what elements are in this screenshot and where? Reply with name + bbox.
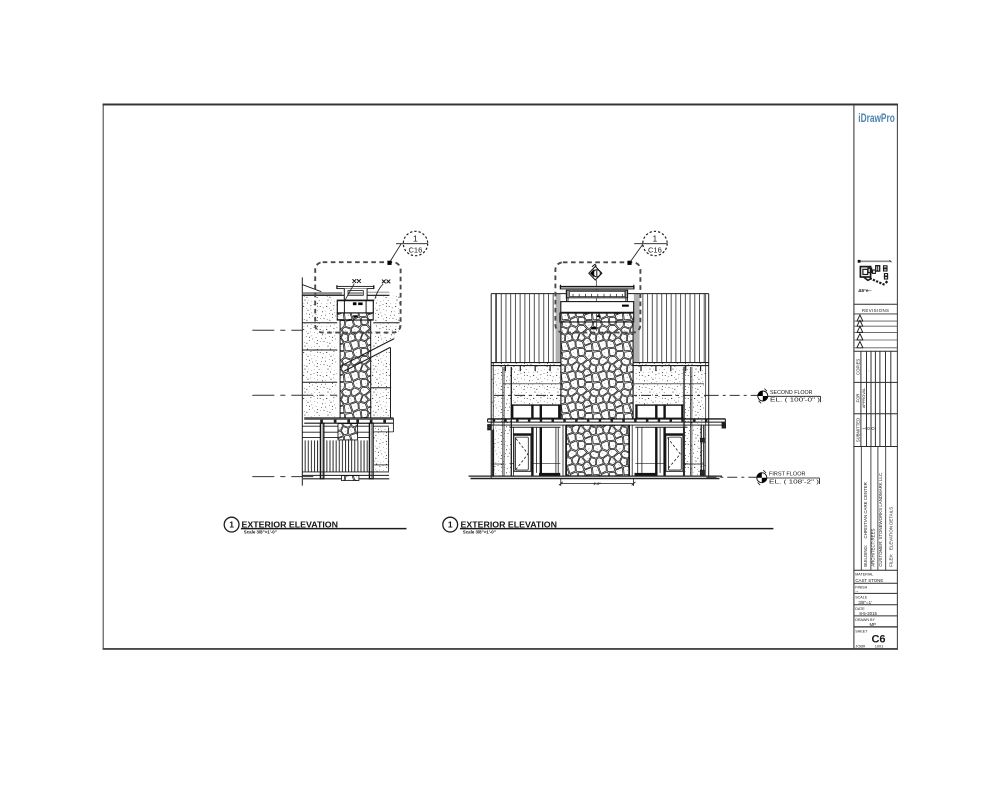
svg-text:1: 1	[229, 520, 234, 530]
svg-text:CHRISTIAN CARE CENTER: CHRISTIAN CARE CENTER	[863, 482, 868, 538]
svg-text:STONEWORKS LANDMARK LLC: STONEWORKS LANDMARK LLC	[878, 473, 883, 540]
svg-text:1: 1	[448, 520, 453, 530]
svg-text:MP: MP	[870, 622, 877, 627]
svg-text:REES: REES	[871, 528, 876, 540]
svg-text:SUBMITTED: SUBMITTED	[856, 418, 861, 442]
svg-text:C16: C16	[648, 246, 662, 255]
svg-text:1: 1	[653, 234, 658, 244]
svg-text:EXTERIOR ELEVATION: EXTERIOR ELEVATION	[242, 519, 339, 529]
svg-text:SECOND FLOOR: SECOND FLOOR	[770, 390, 813, 396]
svg-text:iDrawPro: iDrawPro	[858, 113, 895, 125]
svg-text:FOR: FOR	[855, 393, 860, 402]
svg-text:COPIES: COPIES	[856, 359, 861, 375]
svg-text:JOB#: JOB#	[855, 643, 866, 648]
svg-text:Δ5°e--: Δ5°e--	[858, 288, 872, 293]
svg-text:EL. ( 100'-0" ): EL. ( 100'-0" )	[770, 398, 820, 404]
svg-text:--: --	[855, 589, 858, 594]
svg-text:FILE#:: FILE#:	[888, 554, 893, 567]
svg-text:ARCHITECT:: ARCHITECT:	[871, 541, 876, 567]
svg-text:3/8"=1': 3/8"=1'	[858, 600, 872, 605]
svg-text:EXTERIOR ELEVATION: EXTERIOR ELEVATION	[461, 519, 558, 529]
svg-text:ELEVATION DETAILS: ELEVATION DETAILS	[888, 507, 893, 550]
svg-text:REVISIONS: REVISIONS	[862, 308, 890, 313]
svg-text:Scale 3/8"=1'-0": Scale 3/8"=1'-0"	[244, 529, 277, 534]
svg-text:1001: 1001	[875, 643, 884, 648]
svg-text:Scale 3/8"=1'-0": Scale 3/8"=1'-0"	[463, 529, 496, 534]
svg-text:0: 0	[870, 427, 875, 430]
svg-text:CAST STONE: CAST STONE	[855, 578, 883, 583]
svg-text:C16: C16	[409, 246, 423, 255]
svg-text:BUILDING:: BUILDING:	[863, 545, 868, 567]
svg-text:APPROVAL: APPROVAL	[862, 388, 866, 408]
svg-text:FIRST FLOOR: FIRST FLOOR	[769, 472, 806, 478]
svg-text:4'-0": 4'-0"	[594, 482, 602, 486]
svg-text:SHEET: SHEET	[855, 629, 868, 633]
svg-text:EL. ( 108'-2" ): EL. ( 108'-2" )	[769, 479, 819, 485]
svg-text:1: 1	[413, 234, 418, 244]
svg-text:CUSTOMER:: CUSTOMER:	[878, 541, 883, 567]
svg-text:MATERIAL: MATERIAL	[855, 573, 873, 577]
